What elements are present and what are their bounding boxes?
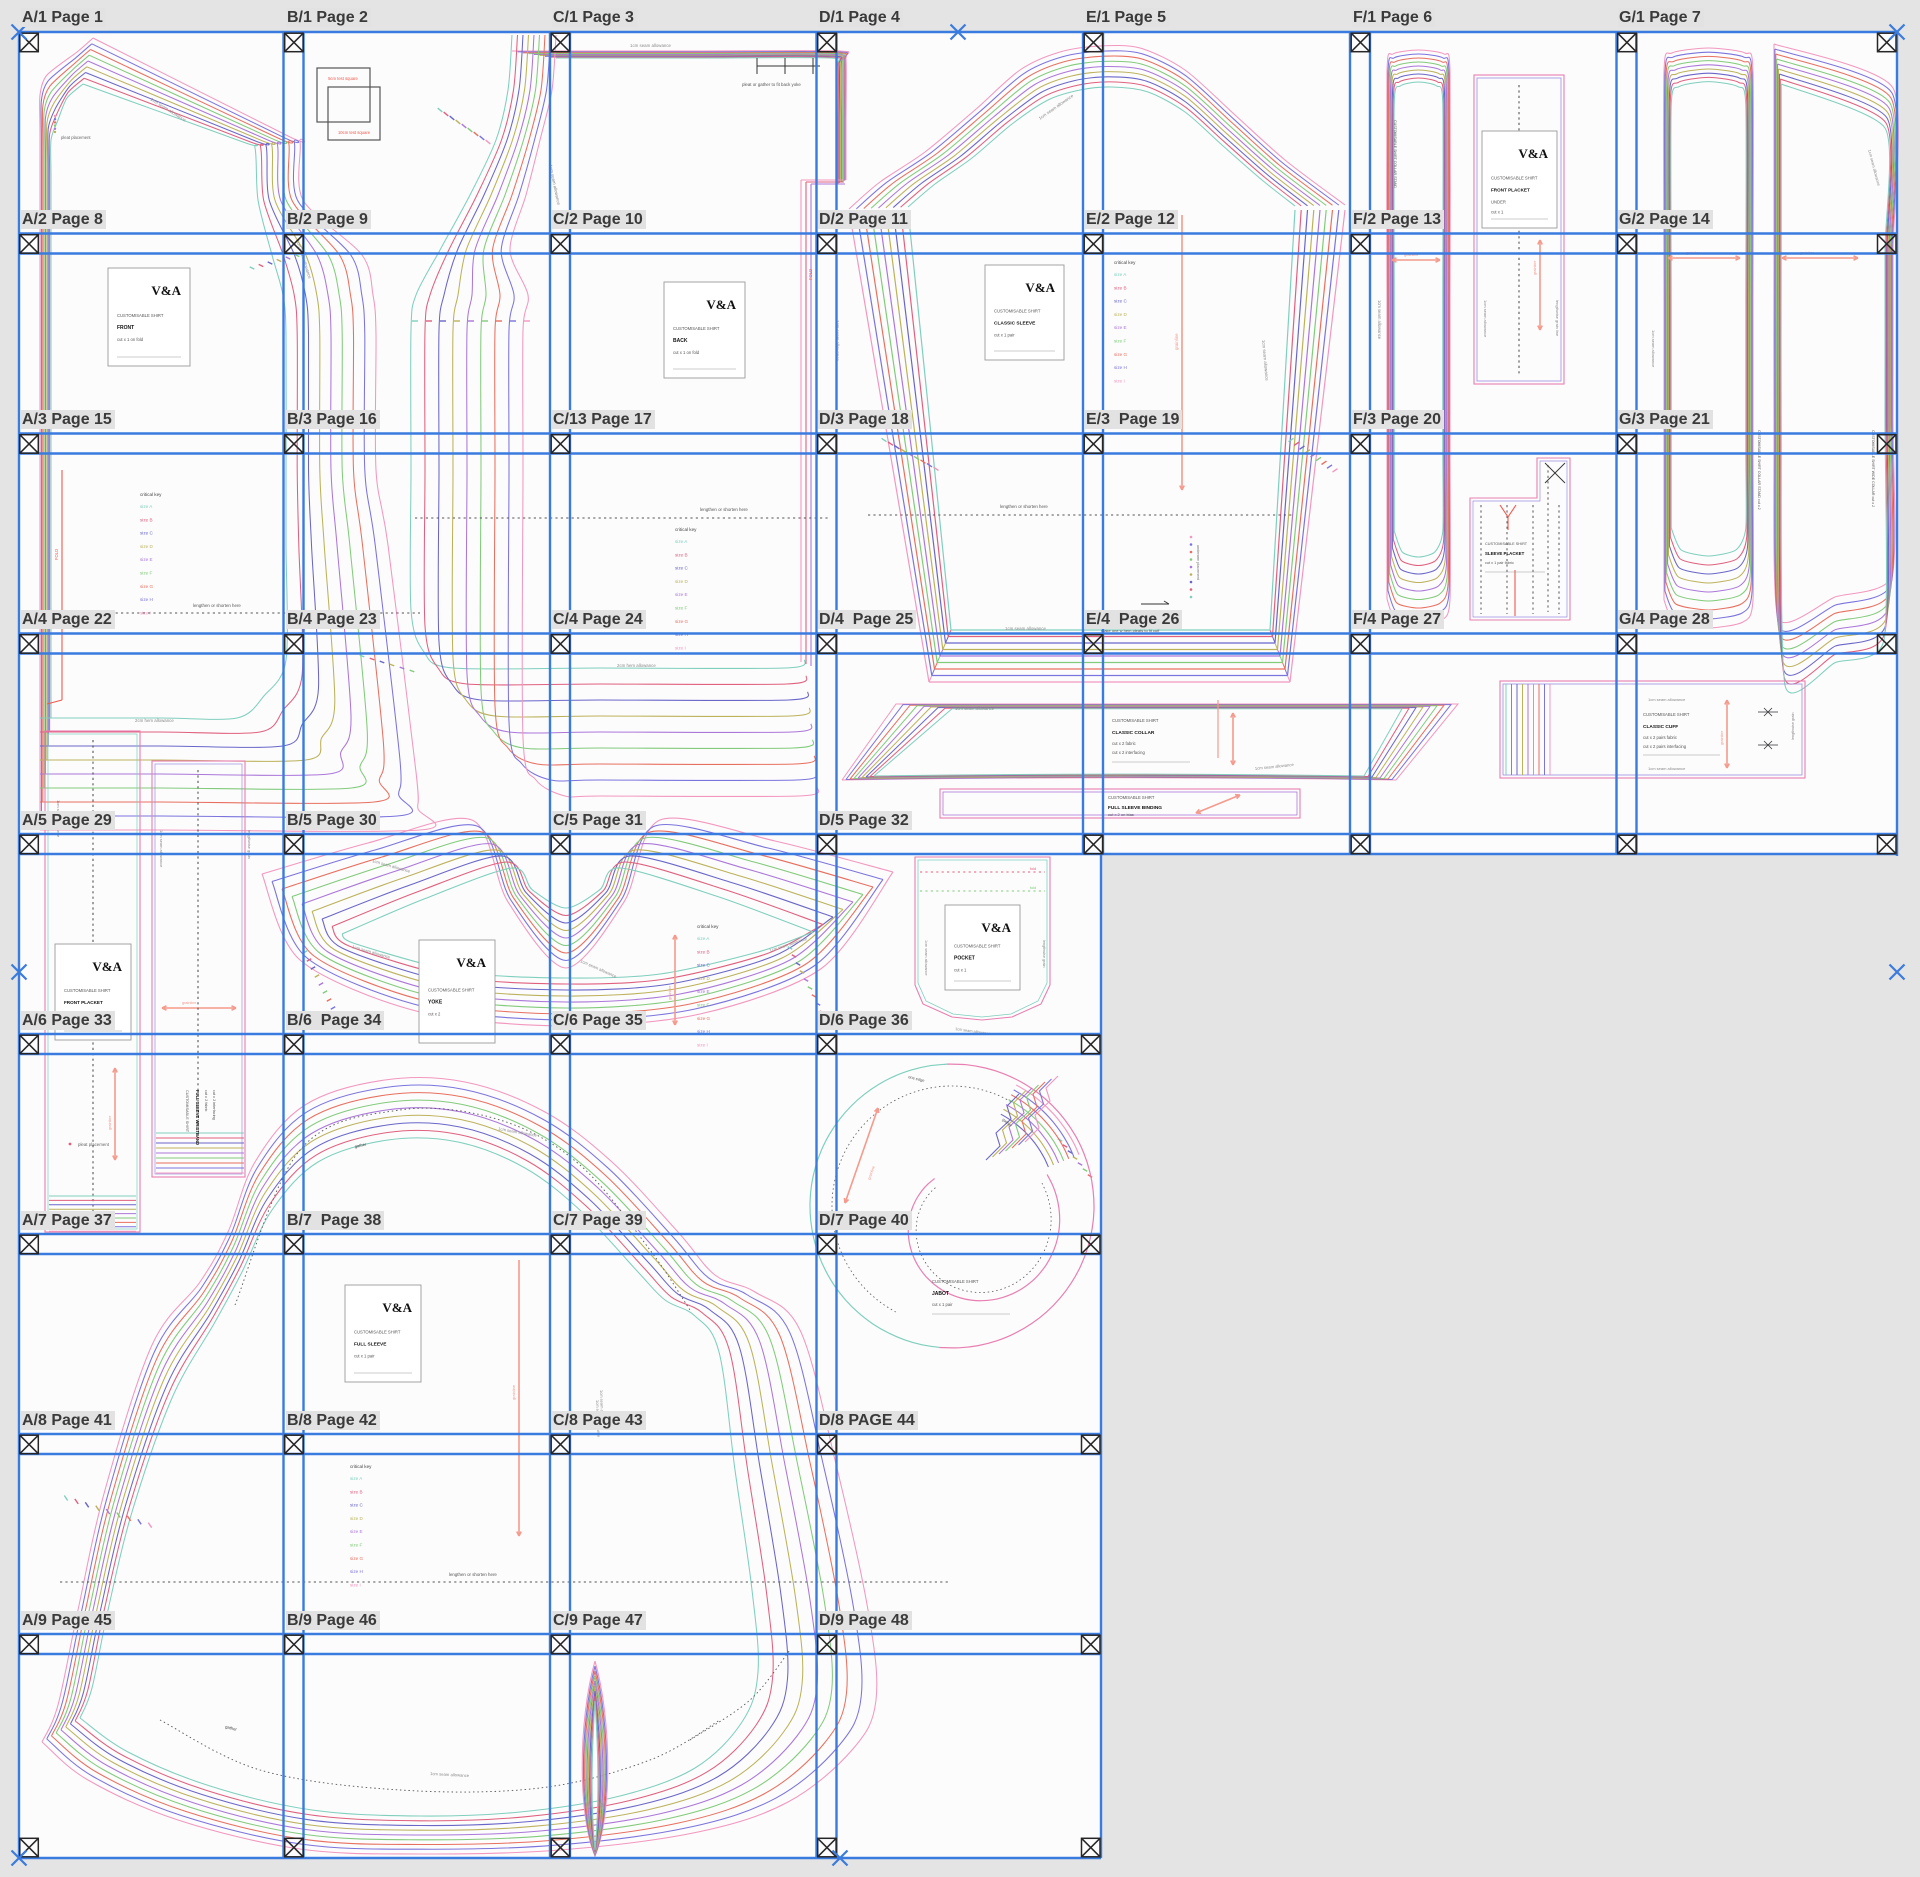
svg-text:size D: size D bbox=[1114, 312, 1127, 317]
svg-text:size C: size C bbox=[675, 566, 688, 571]
svg-text:CUSTOMISABLE SHIRT COLLAR STAN: CUSTOMISABLE SHIRT COLLAR STAND cut x 2 bbox=[1757, 430, 1761, 510]
svg-text:size F: size F bbox=[675, 606, 687, 611]
svg-text:CUSTOMISABLE SHIRT: CUSTOMISABLE SHIRT bbox=[428, 988, 475, 993]
svg-text:CLASSIC COLLAR: CLASSIC COLLAR bbox=[1112, 730, 1155, 736]
svg-text:size E: size E bbox=[675, 592, 688, 597]
svg-text:critical key: critical key bbox=[140, 492, 162, 497]
svg-text:size H: size H bbox=[140, 597, 153, 602]
svg-text:size D: size D bbox=[697, 976, 710, 981]
svg-text:size D: size D bbox=[675, 579, 688, 584]
svg-text:CUSTOMISABLE SHIRT: CUSTOMISABLE SHIRT bbox=[1108, 795, 1155, 800]
svg-text:CUSTOMISABLE SHIRT: CUSTOMISABLE SHIRT bbox=[1112, 718, 1159, 723]
svg-text:cut x 1 on fold: cut x 1 on fold bbox=[117, 337, 144, 342]
svg-text:CUSTOMISABLE SHIRT: CUSTOMISABLE SHIRT bbox=[954, 944, 1001, 949]
svg-text:1cm seam allowance: 1cm seam allowance bbox=[1377, 300, 1382, 340]
svg-text:lengthwise grain line: lengthwise grain line bbox=[1555, 300, 1560, 337]
svg-text:1cm seam allowance: 1cm seam allowance bbox=[1648, 697, 1686, 702]
svg-text:size B: size B bbox=[1114, 285, 1127, 290]
svg-text:size G: size G bbox=[350, 1556, 363, 1561]
svg-text:FULL SLEEVE: FULL SLEEVE bbox=[354, 1342, 387, 1348]
svg-text:BACK: BACK bbox=[673, 338, 688, 344]
svg-text:1cm seam allowance: 1cm seam allowance bbox=[630, 43, 672, 48]
svg-text:size G: size G bbox=[140, 584, 153, 589]
svg-text:CUSTOMISABLE SHIRT: CUSTOMISABLE SHIRT bbox=[185, 1090, 189, 1133]
svg-text:1cm seam allowance: 1cm seam allowance bbox=[1483, 300, 1488, 338]
svg-text:cut x 1 pair fabric: cut x 1 pair fabric bbox=[1485, 561, 1514, 565]
svg-text:critical key: critical key bbox=[697, 924, 719, 929]
svg-text:CUSTOMISABLE SHIRT COLLAR STAN: CUSTOMISABLE SHIRT COLLAR STAND bbox=[1393, 120, 1397, 188]
svg-text:FOLD: FOLD bbox=[54, 549, 59, 560]
svg-text:2cm hem allowance: 2cm hem allowance bbox=[135, 718, 174, 723]
svg-text:critical key: critical key bbox=[350, 1464, 372, 1469]
svg-text:lengthen or shorten here: lengthen or shorten here bbox=[1000, 504, 1048, 509]
svg-text:lengthen or shorten here: lengthen or shorten here bbox=[700, 507, 748, 512]
svg-text:5cm test square: 5cm test square bbox=[328, 76, 358, 81]
svg-text:size F: size F bbox=[1114, 339, 1126, 344]
svg-text:size G: size G bbox=[675, 619, 688, 624]
svg-text:size C: size C bbox=[140, 531, 153, 536]
svg-text:2cm hem allowance: 2cm hem allowance bbox=[617, 663, 656, 668]
svg-text:V&A: V&A bbox=[1518, 146, 1548, 161]
svg-text:size D: size D bbox=[140, 544, 153, 549]
svg-text:CUSTOMISABLE SHIRT: CUSTOMISABLE SHIRT bbox=[1643, 712, 1690, 717]
svg-text:size E: size E bbox=[1114, 325, 1127, 330]
svg-text:FRONT PLACKET: FRONT PLACKET bbox=[1491, 188, 1530, 193]
svg-text:V&A: V&A bbox=[382, 1300, 412, 1315]
svg-text:size A: size A bbox=[350, 1476, 363, 1481]
svg-text:underarm placement: underarm placement bbox=[1196, 545, 1200, 581]
svg-text:V&A: V&A bbox=[151, 283, 181, 298]
svg-text:JABOT: JABOT bbox=[932, 1291, 949, 1297]
svg-text:cut x 2: cut x 2 bbox=[428, 1012, 441, 1017]
svg-text:size D: size D bbox=[350, 1516, 363, 1521]
svg-text:CUSTOMISABLE SHIRT: CUSTOMISABLE SHIRT bbox=[1491, 176, 1538, 181]
svg-text:size A: size A bbox=[697, 936, 710, 941]
svg-text:FOLD: FOLD bbox=[808, 269, 813, 280]
svg-text:cut x 2 fabric: cut x 2 fabric bbox=[204, 1090, 208, 1112]
svg-text:fold: fold bbox=[1030, 867, 1036, 871]
svg-text:grainline: grainline bbox=[511, 1384, 516, 1400]
svg-text:size B: size B bbox=[140, 517, 153, 522]
svg-text:pleat placement: pleat placement bbox=[61, 135, 91, 140]
svg-text:size E: size E bbox=[350, 1529, 363, 1534]
svg-text:FRONT: FRONT bbox=[117, 325, 134, 331]
svg-text:pleat or gather to fit back yo: pleat or gather to fit back yoke bbox=[742, 82, 801, 87]
svg-text:V&A: V&A bbox=[981, 920, 1011, 935]
svg-text:lengthen or shorten here: lengthen or shorten here bbox=[193, 603, 241, 608]
svg-text:grainline: grainline bbox=[1720, 731, 1724, 745]
svg-text:YOKE: YOKE bbox=[428, 1000, 443, 1006]
svg-text:1cm seam allowance: 1cm seam allowance bbox=[1651, 330, 1656, 368]
svg-text:CUSTOMISABLE SHIRT: CUSTOMISABLE SHIRT bbox=[673, 326, 720, 331]
svg-text:size I: size I bbox=[675, 645, 686, 650]
svg-text:size B: size B bbox=[350, 1489, 363, 1494]
svg-text:size C: size C bbox=[350, 1503, 363, 1508]
svg-text:SLEEVE PLACKET: SLEEVE PLACKET bbox=[1485, 551, 1525, 556]
svg-text:V&A: V&A bbox=[456, 955, 486, 970]
svg-text:V&A: V&A bbox=[1025, 280, 1055, 295]
svg-text:1cm seam allowance: 1cm seam allowance bbox=[924, 940, 928, 975]
svg-text:CUSTOMISABLE SHIRT: CUSTOMISABLE SHIRT bbox=[994, 309, 1041, 314]
svg-text:critical key: critical key bbox=[675, 527, 697, 532]
svg-text:grainline: grainline bbox=[668, 986, 672, 1000]
svg-text:CUSTOMISABLE SHIRT: CUSTOMISABLE SHIRT bbox=[1485, 542, 1528, 546]
svg-text:size H: size H bbox=[1114, 365, 1127, 370]
svg-text:FRONT PLACKET: FRONT PLACKET bbox=[64, 1000, 103, 1005]
svg-text:cut x 2 interfacing: cut x 2 interfacing bbox=[212, 1090, 216, 1120]
svg-text:cut x 1 pair: cut x 1 pair bbox=[994, 333, 1015, 338]
svg-text:CUSTOMISABLE SHIRT: CUSTOMISABLE SHIRT bbox=[117, 313, 164, 318]
svg-text:cut x 2 pairs interfacing: cut x 2 pairs interfacing bbox=[1643, 744, 1687, 749]
svg-text:grainline: grainline bbox=[182, 1001, 196, 1005]
svg-text:1cm seam allowance: 1cm seam allowance bbox=[1005, 626, 1047, 631]
svg-text:size F: size F bbox=[697, 1003, 709, 1008]
svg-text:size A: size A bbox=[675, 539, 688, 544]
svg-text:cut x 1 on fold: cut x 1 on fold bbox=[673, 350, 700, 355]
svg-text:size I: size I bbox=[350, 1582, 361, 1587]
svg-text:CUSTOMISABLE SHIRT WIDE COLLAR: CUSTOMISABLE SHIRT WIDE COLLAR cut x 2 bbox=[1871, 430, 1875, 507]
svg-text:grainline: grainline bbox=[1174, 333, 1179, 350]
svg-text:cut x 2 fabric: cut x 2 fabric bbox=[1112, 741, 1136, 746]
svg-text:1cm seam allowance: 1cm seam allowance bbox=[955, 706, 995, 711]
svg-text:size A: size A bbox=[1114, 272, 1127, 277]
svg-text:pleat placement: pleat placement bbox=[78, 1142, 110, 1147]
svg-text:lengthwise grain: lengthwise grain bbox=[1042, 940, 1046, 967]
svg-text:critical key: critical key bbox=[1114, 260, 1136, 265]
svg-text:POCKET: POCKET bbox=[954, 956, 975, 962]
svg-text:CLASSIC SLEEVE: CLASSIC SLEEVE bbox=[994, 321, 1036, 327]
svg-text:size I: size I bbox=[1114, 378, 1125, 383]
svg-text:size F: size F bbox=[350, 1543, 362, 1548]
svg-text:size G: size G bbox=[697, 1016, 710, 1021]
svg-text:size F: size F bbox=[140, 571, 152, 576]
svg-text:V&A: V&A bbox=[706, 297, 736, 312]
svg-text:size E: size E bbox=[140, 557, 153, 562]
svg-text:size C: size C bbox=[697, 963, 710, 968]
svg-text:CUSTOMISABLE SHIRT: CUSTOMISABLE SHIRT bbox=[64, 988, 111, 993]
svg-text:lengthwise grain: lengthwise grain bbox=[1791, 713, 1795, 740]
svg-text:cut x 2 pairs fabric: cut x 2 pairs fabric bbox=[1643, 735, 1677, 740]
svg-text:cut x 2 on bias: cut x 2 on bias bbox=[1108, 812, 1134, 817]
svg-text:size H: size H bbox=[350, 1569, 363, 1574]
svg-text:CLASSIC CUFF: CLASSIC CUFF bbox=[1643, 724, 1678, 730]
svg-text:UNDER: UNDER bbox=[1491, 200, 1506, 205]
svg-text:size B: size B bbox=[697, 949, 710, 954]
svg-text:CUSTOMISABLE SHIRT: CUSTOMISABLE SHIRT bbox=[354, 1330, 401, 1335]
svg-text:1cm seam allowance: 1cm seam allowance bbox=[1648, 766, 1686, 771]
svg-text:size G: size G bbox=[1114, 352, 1127, 357]
svg-text:size I: size I bbox=[697, 1042, 708, 1047]
svg-text:size A: size A bbox=[140, 504, 153, 509]
svg-text:cut x 1: cut x 1 bbox=[954, 968, 967, 973]
svg-text:CUSTOMISABLE SHIRT: CUSTOMISABLE SHIRT bbox=[932, 1279, 979, 1284]
svg-text:size B: size B bbox=[675, 552, 688, 557]
svg-text:cut x 2 interfacing: cut x 2 interfacing bbox=[1112, 750, 1145, 755]
svg-text:cut x 1: cut x 1 bbox=[1491, 210, 1504, 215]
svg-text:10cm test square: 10cm test square bbox=[338, 130, 371, 135]
svg-text:grainline: grainline bbox=[1533, 261, 1537, 275]
svg-text:V&A: V&A bbox=[92, 959, 122, 974]
svg-text:size E: size E bbox=[697, 989, 710, 994]
svg-text:size C: size C bbox=[1114, 299, 1127, 304]
svg-text:1cm seam allowance: 1cm seam allowance bbox=[159, 830, 164, 868]
svg-text:lengthen or shorten here: lengthen or shorten here bbox=[449, 1572, 497, 1577]
svg-text:FULL SLEEVE BINDING: FULL SLEEVE BINDING bbox=[1108, 805, 1162, 811]
svg-text:grainline: grainline bbox=[108, 1116, 112, 1130]
svg-text:fold: fold bbox=[1030, 886, 1036, 890]
svg-text:cut x 1 pair: cut x 1 pair bbox=[932, 1302, 953, 1307]
svg-text:cut x 1 pair: cut x 1 pair bbox=[354, 1354, 375, 1359]
